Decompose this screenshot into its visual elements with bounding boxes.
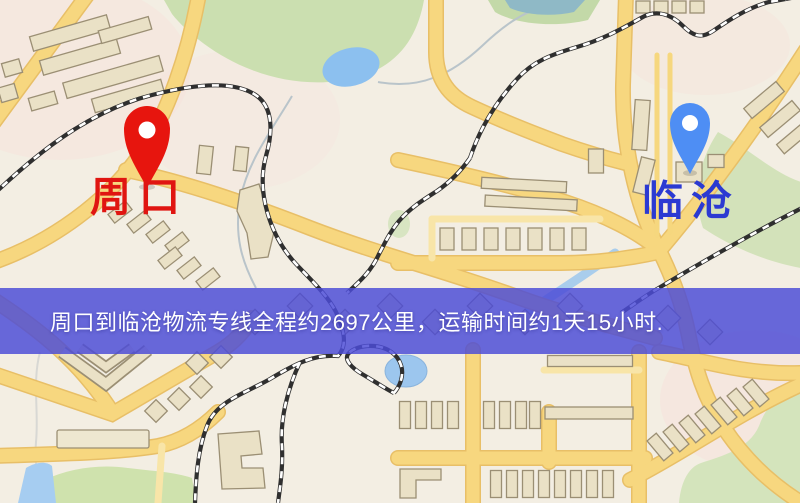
destination-label: 临沧: [642, 181, 740, 222]
origin-label: 周口: [90, 177, 188, 218]
map-graphic: [0, 0, 800, 503]
destination-pin-icon[interactable]: [668, 101, 712, 177]
route-info-banner: 周口到临沧物流专线全程约2697公里，运输时间约1天15小时.: [0, 288, 800, 354]
map-canvas[interactable]: 周口 临沧 周口到临沧物流专线全程约2697公里，运输时间约1天15小时.: [0, 0, 800, 503]
route-info-text: 周口到临沧物流专线全程约2697公里，运输时间约1天15小时.: [50, 305, 663, 337]
